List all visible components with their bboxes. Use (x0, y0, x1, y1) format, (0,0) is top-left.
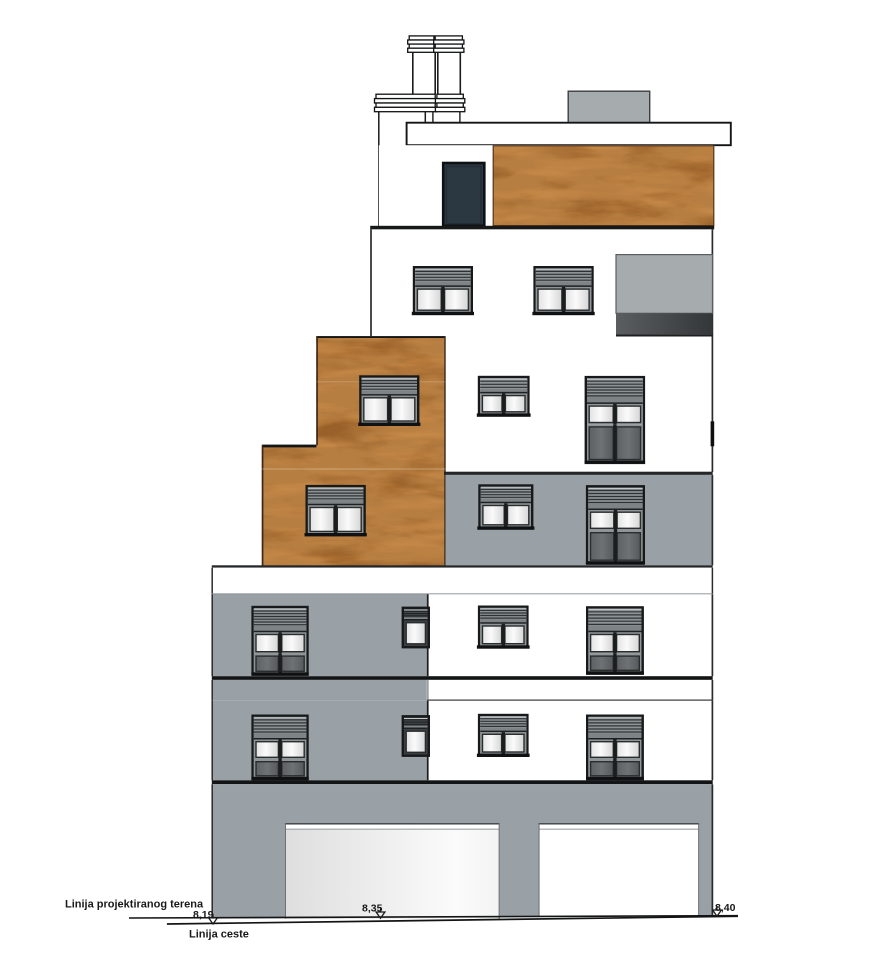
svg-text:Linija projektiranog terena: Linija projektiranog terena (65, 899, 204, 911)
svg-text:8,40: 8,40 (715, 902, 736, 914)
svg-text:8,35: 8,35 (362, 903, 383, 915)
svg-text:8,19: 8,19 (193, 909, 214, 921)
svg-text:Linija ceste: Linija ceste (189, 929, 249, 941)
